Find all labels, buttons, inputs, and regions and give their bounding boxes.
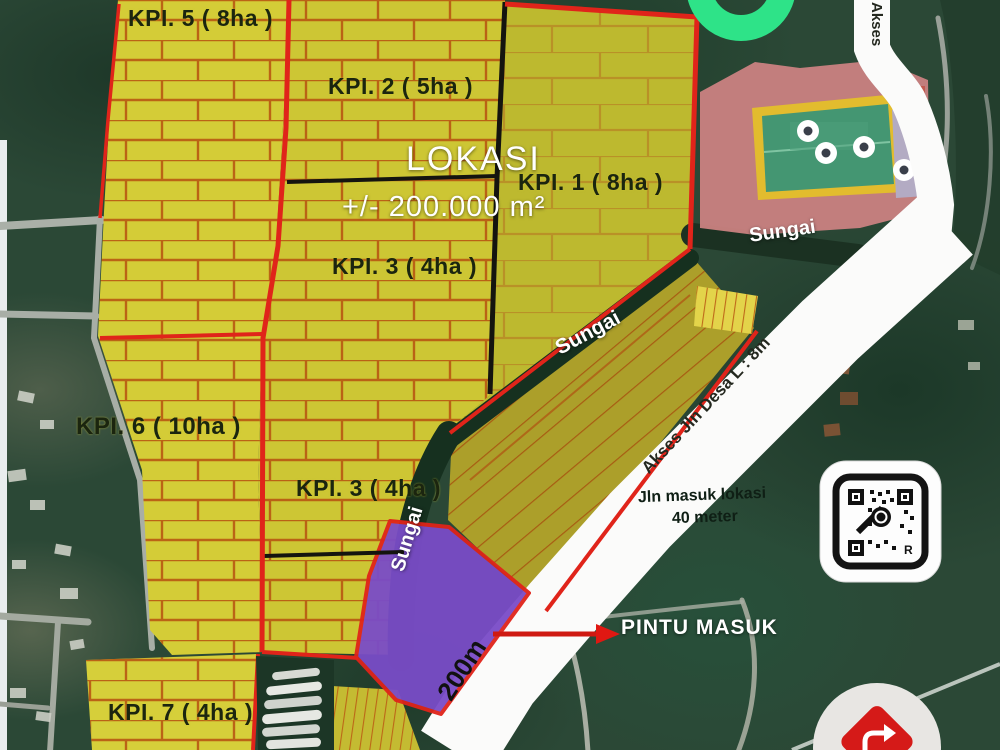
site-title: LOKASI [406,142,541,178]
entrance-note-line2: 40 meter [672,509,738,528]
plot-label-kpi5: KPI. 5 ( 8ha ) [128,6,273,30]
qr-code-panel: R [820,461,941,582]
green-marker-ring [699,0,783,28]
satellite-map: R [0,0,1000,750]
plot-label-kpi2: KPI. 2 ( 5ha ) [328,74,473,98]
plot-label-kpi3-upper: KPI. 3 ( 4ha ) [332,254,477,278]
plot-label-kpi7: KPI. 7 ( 4ha ) [108,700,253,724]
plot-label-kpi3-lower: KPI. 3 ( 4ha ) [296,476,441,500]
screen-edge [0,140,7,750]
turn-direction-button[interactable] [813,683,941,750]
entrance-label: PINTU MASUK [621,617,778,639]
plot-label-kpi6: KPI. 6 ( 10ha ) [76,414,241,439]
access-road-top-label: Akses [868,2,884,46]
site-area: +/- 200.000 m² [342,192,545,222]
dock-boats [256,656,334,750]
map-canvas: R KPI. 5 ( 8ha ) KPI. 2 ( 5ha ) KPI. 1 (… [0,0,1000,750]
qr-letter: R [904,543,913,557]
